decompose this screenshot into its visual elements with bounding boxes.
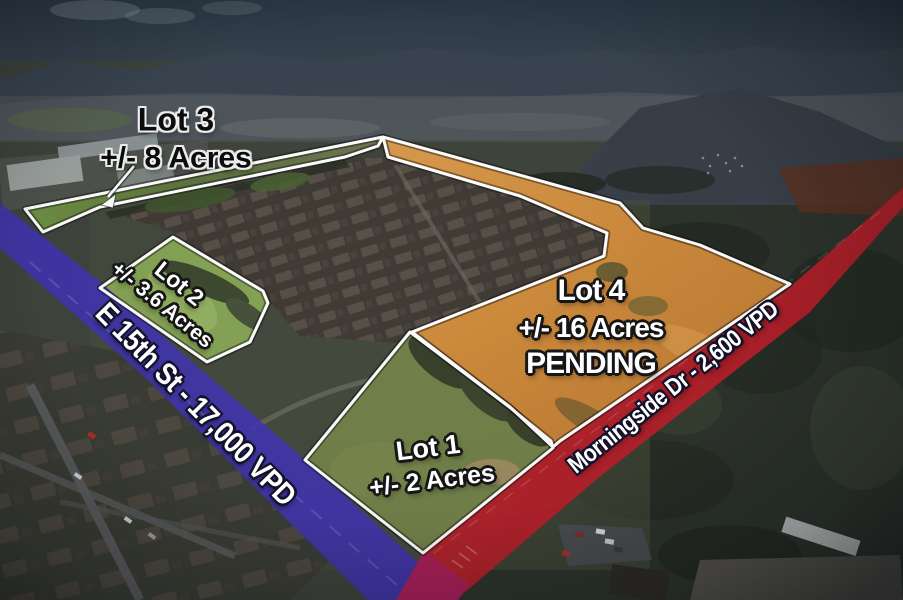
- lot4-status-pending: PENDING: [519, 345, 664, 383]
- lot3-name: Lot 3: [100, 99, 251, 139]
- lot3-acreage: +/- 8 Acres: [100, 139, 251, 177]
- lot4-label: Lot 4 +/- 16 Acres PENDING: [519, 272, 664, 382]
- lot4-acreage: +/- 16 Acres: [519, 310, 664, 345]
- lot3-label: Lot 3 +/- 8 Acres: [100, 99, 251, 177]
- aerial-lot-map: Lot 3 +/- 8 Acres Lot 2 +/- 3.6 Acres Lo…: [0, 0, 903, 600]
- lot4-name: Lot 4: [519, 272, 664, 310]
